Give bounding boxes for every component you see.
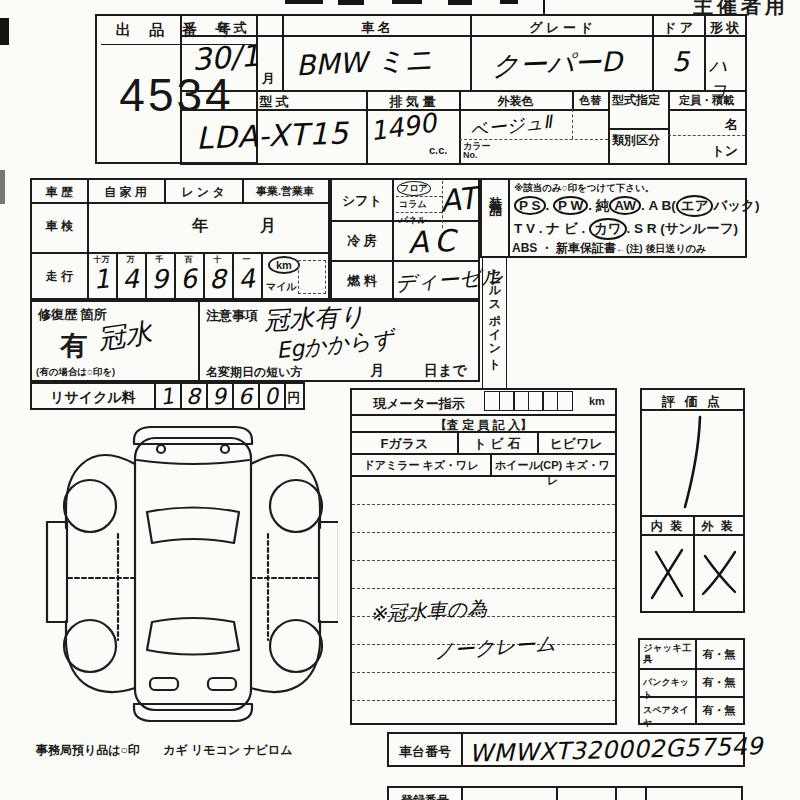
repair-box: 修復歴 箇所 有 冠水 (有の場合は○印を): [30, 300, 200, 382]
grade-header: グ レ ー ド: [470, 19, 652, 37]
history-block: 車 歴 自 家 用 レ ン タ 事業.営業車 車 検 年 月 走 行 十万 万 …: [30, 178, 330, 300]
warranty-note: ←(注) 後日送りのみ: [616, 243, 706, 254]
right-side: [251, 455, 338, 692]
color-no-label: カラーNo.: [463, 142, 497, 161]
mileage-km-unit-circled: km: [268, 256, 300, 274]
puncture-kit-label: パンクキット: [643, 676, 693, 702]
office-note-items: カギ リモコン ナビロム: [163, 743, 292, 757]
ext-color-header: 外装色: [459, 93, 572, 110]
scan-edge-mark: [0, 170, 5, 204]
chassis-value: WMWXT320002G57549: [469, 732, 764, 768]
grade-value: クーパーD: [491, 44, 622, 85]
mileage-label: 走 行: [32, 268, 87, 285]
vehicle-table: 年 式 車 名 グ レ ー ド ド ア 形 状 30/1 月 BMW ミニ クー…: [180, 14, 747, 165]
exterior-mark: [695, 538, 743, 608]
doors-value: 5: [672, 46, 689, 77]
cooling-label: 冷 房: [332, 232, 392, 250]
ext-color-value: ベージュⅡ: [469, 110, 553, 142]
exterior-label: 外 装: [693, 518, 743, 535]
bottom-cell: [615, 786, 647, 800]
assessor-front-glass: Fガラス: [352, 435, 457, 453]
car-diagram: [38, 416, 338, 731]
history-option-private: 自 家 用: [87, 184, 164, 201]
assessor-crack: ヒビワレ: [537, 435, 615, 453]
assessor-hand-note1: ※冠水車の為: [369, 595, 487, 628]
displacement-value: 1490: [368, 108, 438, 147]
equipment-line3: ABS ・ 新車保証書←(注) 後日送りのみ: [512, 240, 706, 257]
capacity-tons-unit: トン: [668, 142, 738, 160]
recycle-digit: 6: [232, 384, 258, 409]
assessor-wheel: ホイール(CP) キズ・ワレ: [490, 458, 615, 488]
cutoff-header-fragment: [338, 0, 364, 5]
recycle-digit: 8: [180, 384, 206, 409]
spare-tire-label: スペアタイヤ: [643, 704, 693, 730]
registration-label: 登録番号: [389, 792, 461, 800]
chassis-label-box: 車台番号: [387, 732, 463, 767]
divider-fragment: [543, 0, 545, 15]
capacity-header: 定員・積載: [668, 93, 745, 108]
cutoff-header-fragment: [392, 0, 422, 4]
year-value: 30/1: [191, 38, 261, 78]
history-label: 車 歴: [32, 184, 87, 201]
assessor-stone-chip: ト ビ 石: [457, 435, 537, 453]
bottom-cell: [461, 786, 558, 800]
name-value: BMW ミニ: [295, 40, 434, 85]
airbag-circled: エア: [676, 195, 714, 217]
shift-option-column: コラム: [396, 197, 442, 213]
equipment-note: ※該当のみ○印をつけて下さい。: [514, 182, 654, 195]
mileage-digit: 6: [173, 263, 204, 295]
equipment-label: 装備品: [486, 186, 504, 198]
sales-point-label: セールスポイント: [486, 261, 503, 365]
bottom-cell: [556, 786, 617, 800]
ps-circled: P S: [514, 196, 546, 215]
displacement-unit: c.c.: [429, 144, 447, 156]
chassis-label: 車台番号: [389, 743, 461, 761]
meter-km-unit: km: [589, 395, 605, 407]
cooling-value: AC: [407, 223, 462, 261]
year-header: 年 式: [182, 19, 282, 37]
recycle-fee-label: リサイクル料: [32, 389, 154, 407]
assessor-door-mirror: ドアミラー キズ・ワレ: [352, 458, 490, 473]
transfer-day-unit: 日まで: [424, 362, 467, 380]
transfer-deadline-label: 名変期日の短い方: [206, 364, 303, 381]
leather-circled: カワ: [589, 218, 627, 240]
sales-point-column: セールスポイント: [482, 258, 507, 390]
office-note-left: 事務局預り品は○印: [36, 743, 140, 757]
sep: .: [546, 198, 554, 213]
shift-option-floor-circled: フロア: [397, 181, 431, 196]
jack-tools-label: ジャッキ工具: [643, 643, 693, 665]
tv-navi: T V . ナ ビ .: [514, 221, 589, 236]
fuel-label: 燃 料: [332, 272, 392, 290]
pw-circled: P W: [553, 196, 588, 215]
sunroof: . S R (サンルーフ): [627, 221, 739, 236]
repair-hand-value: 冠水: [96, 314, 154, 357]
interior-label: 内 装: [642, 518, 693, 535]
shaken-label: 車 検: [32, 218, 87, 235]
abs-warranty: ABS ・ 新車保証書: [512, 241, 616, 255]
shift-options: フロア コラム パネル: [396, 181, 443, 228]
assessor-hand-note2: ノークレーム: [433, 630, 556, 665]
chassis-value-box: WMWXT320002G57549: [461, 732, 745, 767]
caution-box: 注意事項 冠水有り Egかからず 名変期日の短い方 月 日まで: [198, 300, 480, 382]
type-designation-label: 型式指定: [612, 92, 660, 109]
shift-value: AT: [438, 180, 478, 219]
transfer-month-unit: 月: [370, 362, 384, 380]
cutoff-header-fragment: [500, 0, 518, 4]
mileage-mile-box: [298, 260, 326, 294]
evaluation-score-mark: [642, 409, 743, 515]
meter-label: 現メーター指示: [356, 395, 482, 413]
doors-header: ド ア: [652, 19, 704, 37]
color-change-header: 色替: [572, 93, 608, 108]
meter-digit-boxes: [484, 391, 571, 411]
puncture-kit-value: 有・無: [695, 675, 743, 690]
scan-edge-mark: [0, 18, 9, 45]
year-month-unit: 月: [262, 70, 275, 88]
assessor-table: 現メーター指示 km 【査 定 員 記 入】 Fガラス ト ビ 石 ヒビワレ ド…: [350, 388, 617, 725]
assessor-header: 【査 定 員 記 入】: [352, 417, 615, 434]
mileage-mile-unit: マイル: [266, 280, 297, 294]
recycle-digit: 9: [205, 383, 233, 410]
shape-header: 形 状: [704, 19, 745, 37]
recycle-fee-row: リサイクル料 1 8 9 6 0 円: [30, 382, 305, 410]
mileage-digit: 4: [115, 263, 146, 294]
repair-note: (有の場合は○印を): [36, 366, 115, 379]
interior-mark: [644, 538, 692, 608]
equipment-line2: T V . ナ ビ . カワ. S R (サンルーフ): [514, 218, 738, 240]
aw-circled: AW: [609, 196, 641, 215]
cutoff-header-fragment: [285, 0, 323, 4]
mileage-digit: 1: [86, 263, 118, 295]
caution-label: 注意事項: [206, 307, 258, 325]
class-division-label: 類別区分: [612, 132, 660, 149]
model-value: LDA-XT15: [195, 115, 349, 155]
evaluation-box: 評 価 点 内 装 外 装: [640, 388, 745, 613]
left-side: [47, 455, 135, 692]
mileage-digit: 9: [145, 264, 174, 294]
recycle-digit: 1: [152, 382, 181, 410]
shift-label: シフト: [332, 192, 392, 210]
spare-tire-value: 有・無: [695, 703, 743, 718]
registration-label-box: 登録番号: [387, 786, 463, 800]
history-option-rental: レ ン タ: [164, 184, 242, 201]
mileage-digit: 8: [203, 264, 232, 294]
recycle-digit: 0: [257, 383, 285, 410]
accessories-table: ジャッキ工具 有・無 パンクキット 有・無 スペアタイヤ 有・無: [638, 638, 745, 725]
shaken-year-unit: 年: [192, 216, 208, 237]
office-note: 事務局預り品は○印 カギ リモコン ナビロム: [36, 742, 293, 759]
jack-tools-value: 有・無: [695, 647, 743, 662]
history-option-commercial: 事業.営業車: [242, 184, 328, 199]
repair-printed-value: 有: [60, 328, 87, 364]
bottom-cell: [645, 786, 743, 800]
model-header: 型 式: [182, 93, 366, 111]
sep: . A B(: [641, 198, 676, 213]
shaken-month-unit: 月: [260, 216, 276, 237]
displacement-header: 排 気 量: [366, 93, 459, 111]
auction-sheet: 主催者用 出 品 番 号 4534 年 式 車 名 グ レ ー ド ド ア 形 …: [0, 0, 800, 800]
name-header: 車 名: [282, 19, 470, 37]
shift-block: シフト フロア コラム パネル AT 冷 房 AC 燃 料 ディーゼル: [330, 178, 480, 300]
cutoff-header-fragment: [448, 0, 472, 5]
sep: バック): [713, 198, 759, 213]
mileage-digit: 4: [231, 263, 263, 296]
equipment-block: 装備品 ※該当のみ○印をつけて下さい。 P S. P W. 純AW. A B(エ…: [480, 178, 747, 258]
recycle-yen-unit: 円: [284, 389, 304, 407]
capacity-persons-unit: 名: [668, 116, 738, 134]
equipment-line1: P S. P W. 純AW. A B(エアバック): [514, 195, 759, 217]
sep: . 純: [588, 198, 609, 213]
